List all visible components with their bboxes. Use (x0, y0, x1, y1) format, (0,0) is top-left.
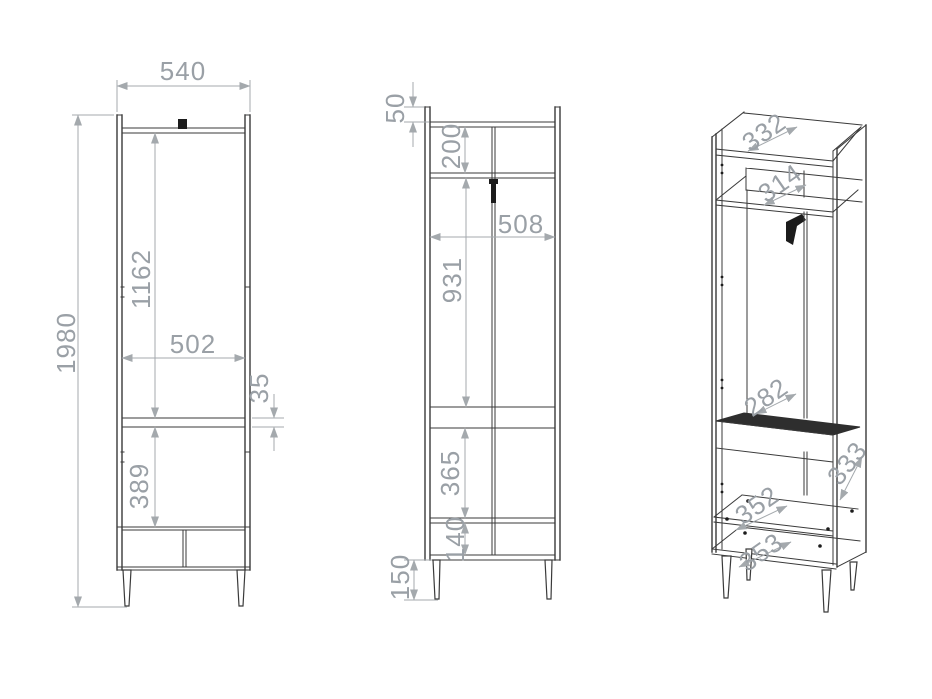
iso-back-right-leg (850, 562, 857, 590)
dim-front-interior-height: 1162 (128, 249, 154, 309)
side-back-leg (433, 560, 440, 599)
hanger-rail-bracket (489, 179, 498, 203)
furniture-dimension-drawing: 540 1980 1162 502 35 389 50 200 508 931 … (0, 0, 932, 699)
dim-front-total-height: 1980 (53, 312, 79, 374)
dim-front-lower-compartment: 389 (126, 463, 152, 509)
dim-side-top-compartment: 200 (438, 123, 464, 169)
dim-side-leg-height: 150 (387, 554, 413, 600)
drawing-linework (0, 0, 932, 699)
side-view-drawing (404, 82, 560, 600)
front-left-leg (123, 570, 131, 606)
wall-mount-bracket (178, 119, 187, 129)
dim-side-hanging-height: 931 (439, 257, 465, 303)
iso-front-left-leg (722, 556, 731, 598)
dim-side-lower-compartment: 365 (437, 450, 463, 496)
dim-side-top-lip: 50 (382, 93, 408, 124)
dim-front-shelf-thickness: 35 (246, 373, 272, 404)
side-front-leg (545, 560, 552, 599)
dim-side-drawer-zone: 140 (442, 516, 468, 562)
iso-front-right-leg (822, 570, 831, 612)
dim-front-width: 540 (160, 58, 206, 84)
dim-front-interior-width: 502 (170, 331, 216, 357)
hanger-rail-bracket-iso (786, 214, 806, 245)
front-right-leg (237, 570, 245, 606)
dim-side-interior-depth: 508 (498, 211, 544, 237)
